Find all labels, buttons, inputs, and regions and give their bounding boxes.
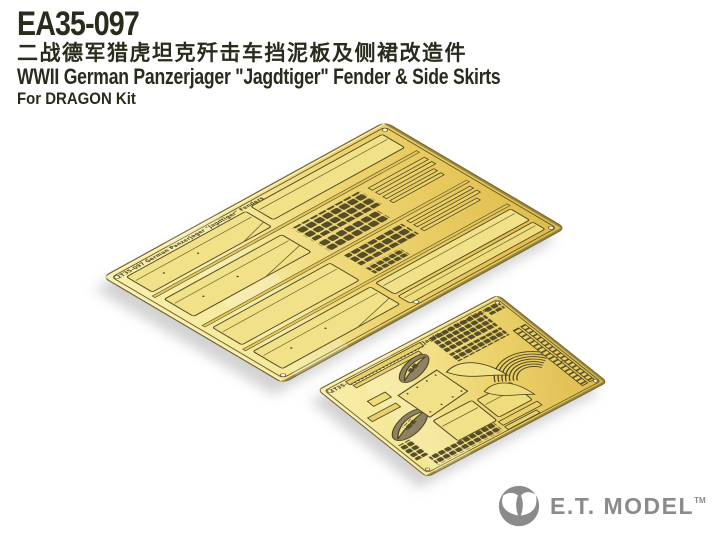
product-image: ET35-097 German Panzerjager "Jagdtiger" … [0,0,720,540]
product-code: EA35-097 [17,7,139,41]
kit-compatibility-note: For DRAGON Kit [17,90,136,107]
trademark-mark: TM [694,496,706,505]
brand-logo: E.T. MODELTM [496,482,706,530]
title-chinese: 二战德军猎虎坦克歼击车挡泥板及侧裙改造件 [17,43,467,64]
title-english: WWII German Panzerjager "Jagdtiger" Fend… [17,66,500,88]
brand-text: E.T. MODEL [550,493,694,519]
brand-name: E.T. MODELTM [550,493,706,520]
alien-head-icon [496,482,542,530]
